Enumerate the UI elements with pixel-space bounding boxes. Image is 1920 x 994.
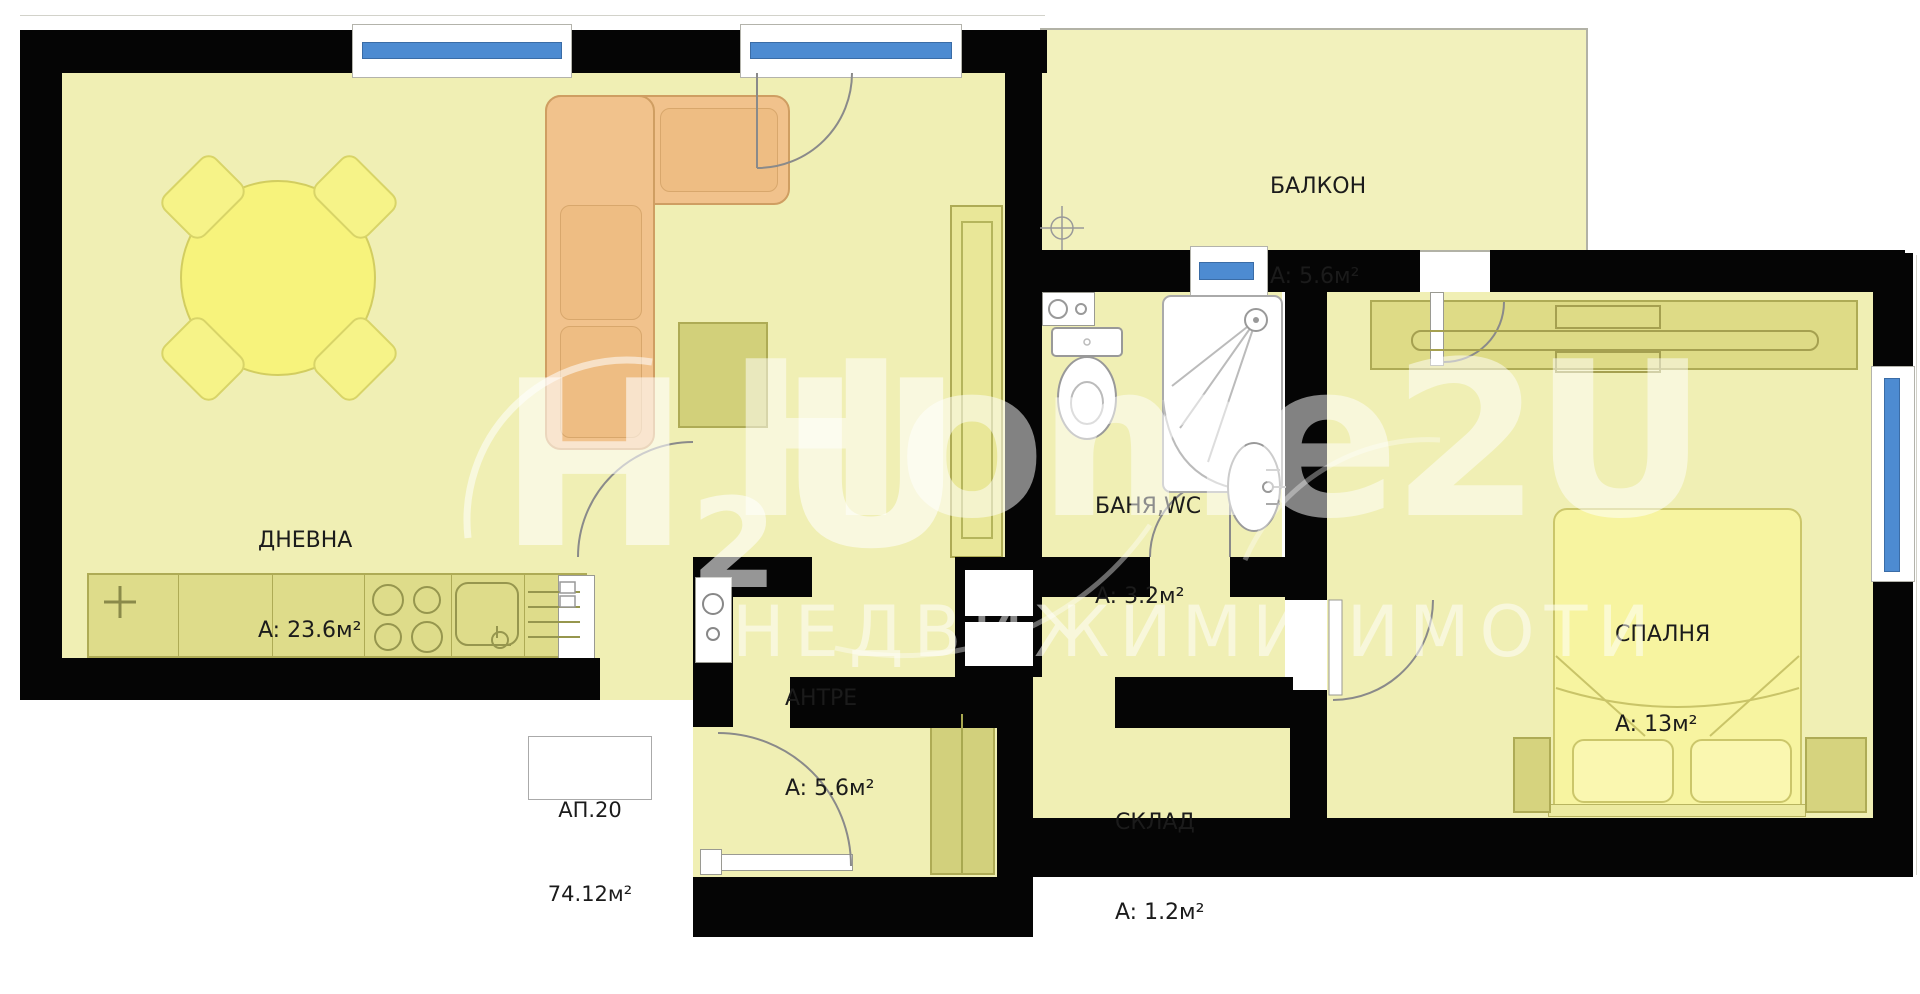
entrance-door-hinge <box>700 849 722 875</box>
wall <box>20 30 62 700</box>
label-storage: СКЛАД A: 1.2м² <box>1115 748 1204 988</box>
room-name: АНТРЕ <box>785 684 874 714</box>
wall <box>1490 250 1905 292</box>
wall <box>1873 580 1913 877</box>
window-glass <box>750 42 952 59</box>
watermark-tagline: НЕДВИЖИМИ ИМОТИ <box>732 592 1660 672</box>
room-name: БАЛКОН <box>1270 172 1366 202</box>
room-name: ДНЕВНА <box>258 526 361 556</box>
apartment-total-area: 74.12м² <box>529 880 651 908</box>
room-area: A: 13м² <box>1615 710 1710 740</box>
room-area: A: 5.6м² <box>785 774 874 804</box>
hall-wardrobe <box>930 712 995 875</box>
outline-right <box>1916 255 1917 875</box>
apartment-info-box: АП.20 74.12м² <box>528 736 652 800</box>
floorplan: ДНЕВНА A: 23.6м² БАЛКОН A: 5.6м² БАНЯ,WC… <box>0 0 1920 994</box>
room-name: СКЛАД <box>1115 808 1204 838</box>
logo-h: H <box>498 352 691 582</box>
nightstand <box>1805 737 1867 813</box>
window-glass <box>1884 378 1900 572</box>
apartment-number: АП.20 <box>529 796 651 824</box>
outline-top <box>20 15 1045 16</box>
room-area: A: 1.2м² <box>1115 898 1204 928</box>
wall <box>1042 250 1192 292</box>
wall <box>1873 253 1913 368</box>
window-glass <box>1199 262 1254 280</box>
nightstand <box>1513 737 1551 813</box>
label-living: ДНЕВНА A: 23.6м² <box>258 466 361 706</box>
counter-divider <box>178 573 179 658</box>
wall <box>565 30 748 73</box>
watermark-brand: Home2U <box>726 318 1700 563</box>
wall <box>20 30 360 73</box>
room-area: A: 23.6м² <box>258 616 361 646</box>
sofa-cushion <box>560 205 642 320</box>
sofa-cushion <box>660 108 778 192</box>
wall <box>693 877 1033 937</box>
wall <box>1290 690 1327 818</box>
window-glass <box>362 42 562 59</box>
counter-divider <box>451 573 452 658</box>
wall <box>1115 677 1293 728</box>
counter-divider <box>364 573 365 658</box>
room-area: A: 5.6м² <box>1270 262 1366 292</box>
bed-headboard <box>1548 804 1806 817</box>
